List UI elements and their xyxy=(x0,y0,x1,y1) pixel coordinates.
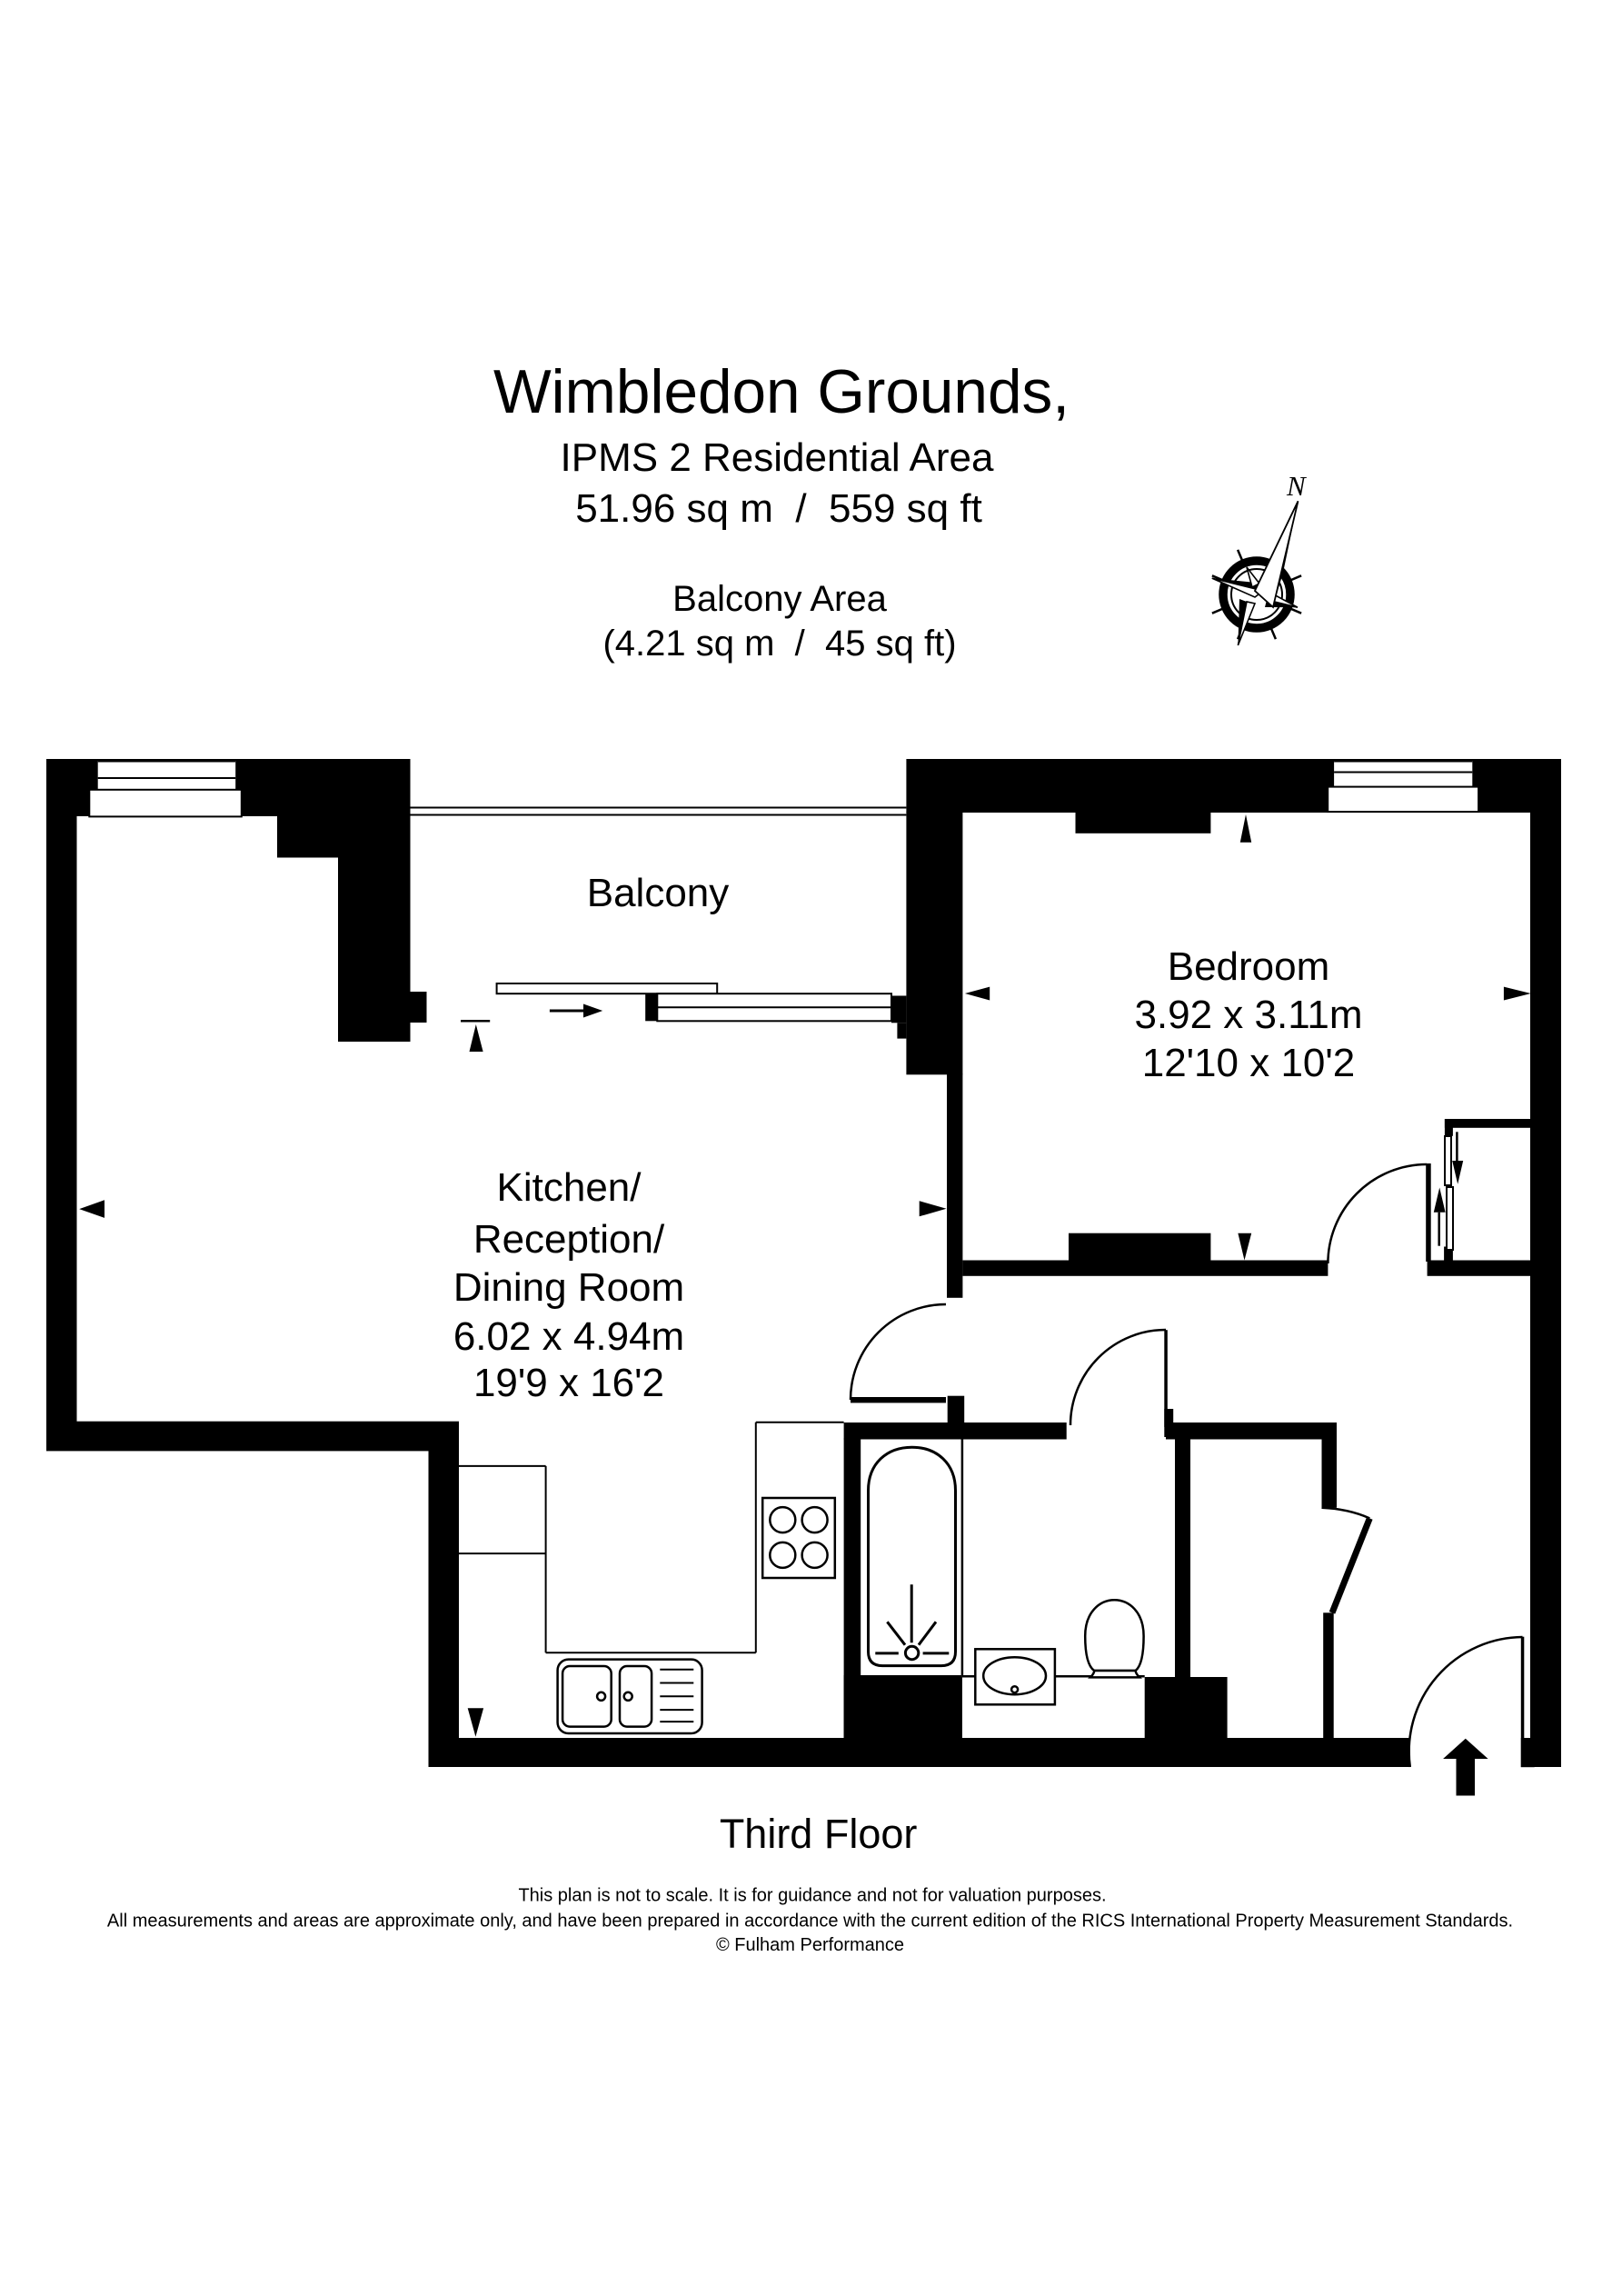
svg-text:IPMS 2 Residential Area: IPMS 2 Residential Area xyxy=(561,435,994,480)
svg-text:© Fulham Performance: © Fulham Performance xyxy=(716,1935,904,1955)
svg-text:All measurements and areas are: All measurements and areas are approxima… xyxy=(107,1912,1513,1932)
svg-text:51.96 sq m / 559 sq ft: 51.96 sq m / 559 sq ft xyxy=(575,486,982,531)
svg-text:Balcony: Balcony xyxy=(587,871,730,915)
svg-text:(4.21 sq m / 45 sq ft): (4.21 sq m / 45 sq ft) xyxy=(602,624,956,664)
svg-text:Reception/: Reception/ xyxy=(473,1217,665,1262)
svg-text:6.02 x 4.94m: 6.02 x 4.94m xyxy=(453,1314,684,1359)
svg-text:3.92 x 3.11m: 3.92 x 3.11m xyxy=(1134,993,1362,1037)
svg-text:Wimbledon Grounds,: Wimbledon Grounds, xyxy=(493,358,1070,426)
svg-text:12'10 x 10'2: 12'10 x 10'2 xyxy=(1142,1041,1356,1085)
svg-text:Kitchen/: Kitchen/ xyxy=(497,1165,642,1210)
svg-text:19'9 x 16'2: 19'9 x 16'2 xyxy=(473,1361,664,1405)
svg-text:Balcony Area: Balcony Area xyxy=(672,579,887,619)
svg-text:Bedroom: Bedroom xyxy=(1168,944,1330,989)
svg-text:Dining Room: Dining Room xyxy=(453,1265,684,1310)
svg-text:N: N xyxy=(1286,470,1308,502)
svg-text:This plan is not to scale. It: This plan is not to scale. It is for gui… xyxy=(518,1886,1106,1906)
svg-text:Third Floor: Third Floor xyxy=(720,1811,918,1857)
